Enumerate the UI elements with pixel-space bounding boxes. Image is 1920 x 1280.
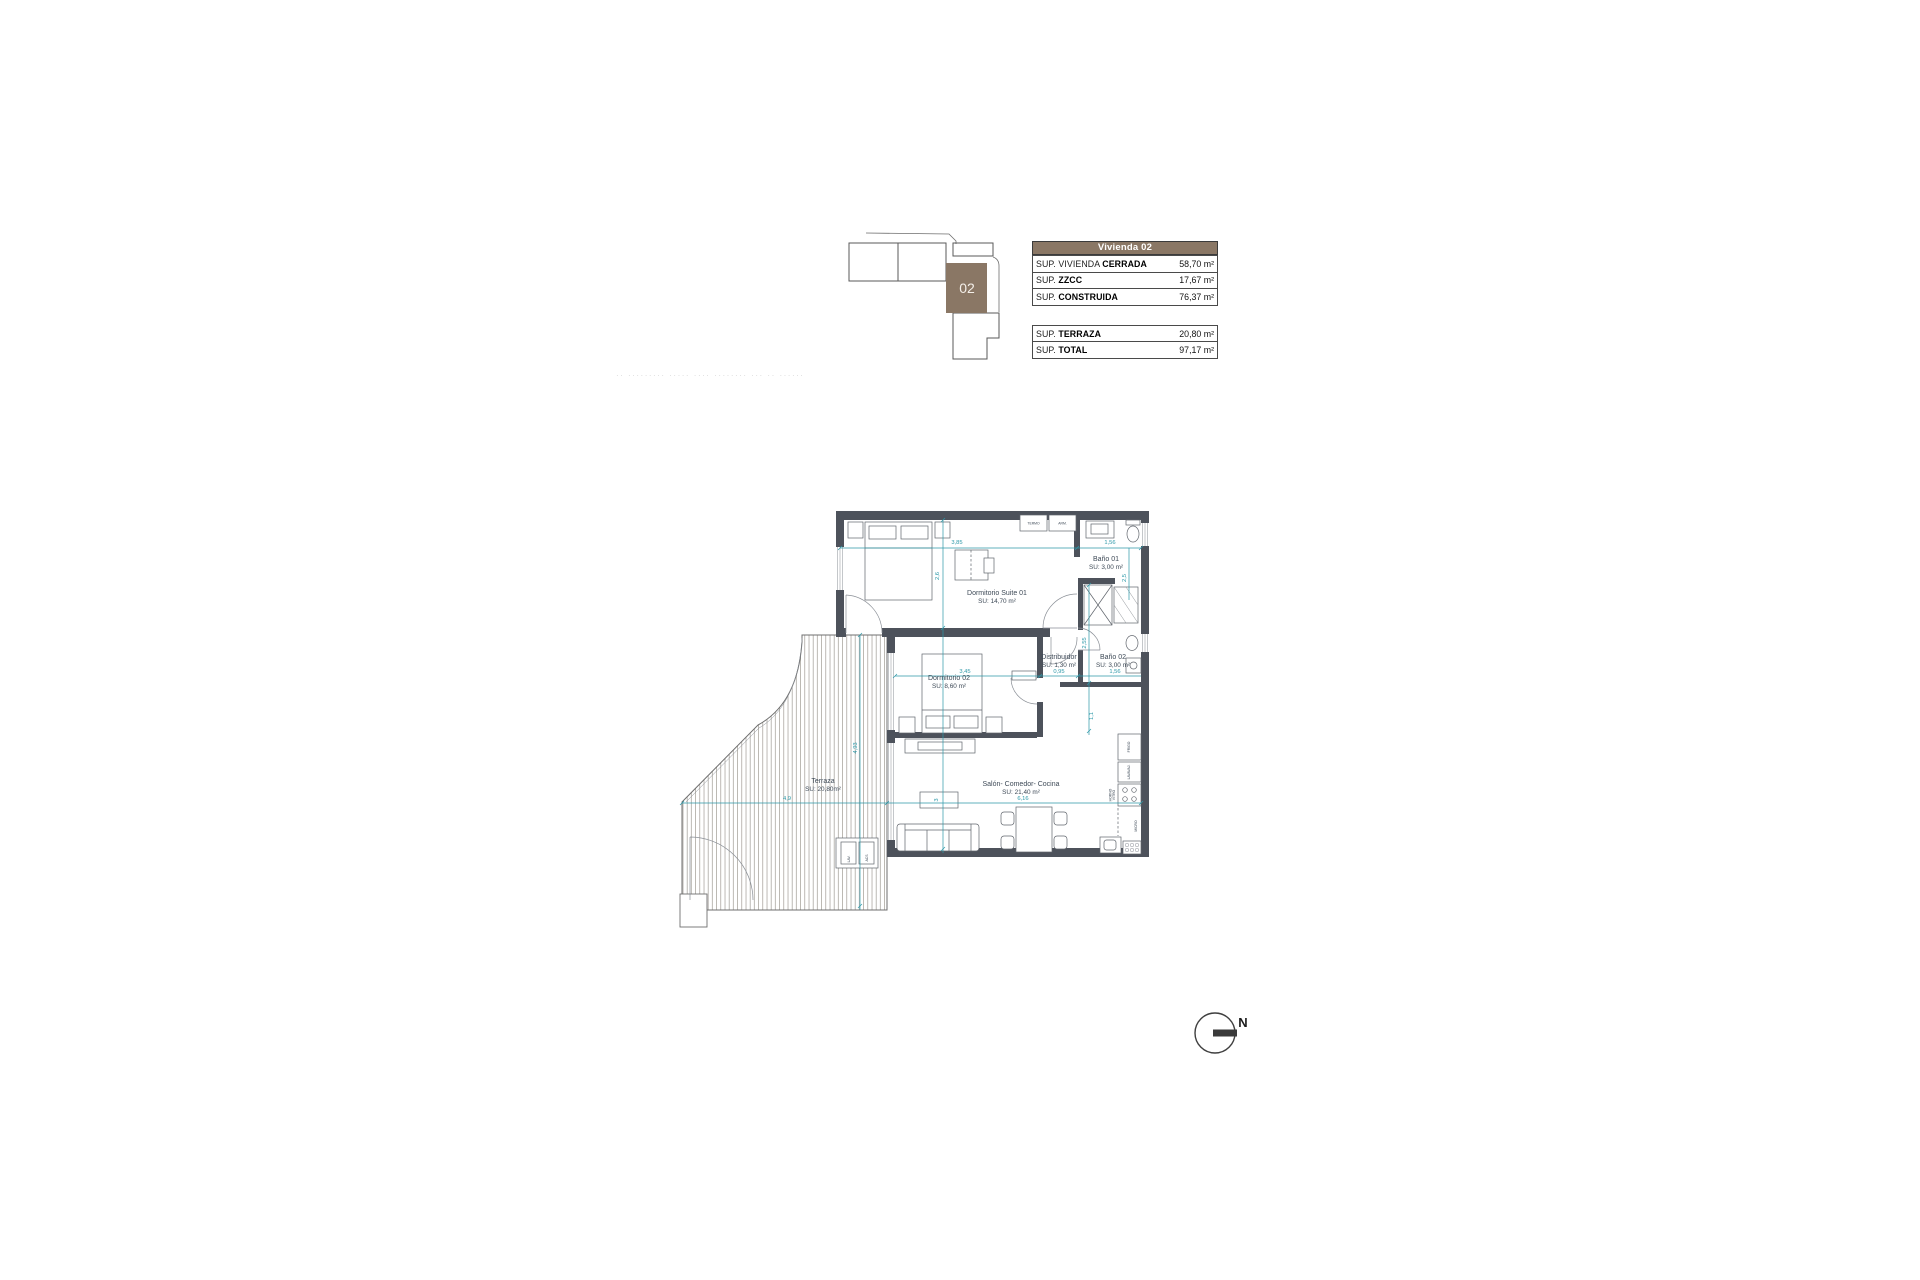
suite-name: Dormitorio Suite 01 — [967, 590, 1027, 597]
bano2-name: Baño 02 — [1100, 654, 1126, 661]
distribuidor-area: SU: 1,30 m² — [1042, 662, 1076, 669]
suite-nightstand — [935, 522, 950, 538]
kitchen-corner-hob — [1123, 841, 1141, 854]
key-plan-outer-line-right — [993, 257, 999, 312]
dorm2-pillow — [926, 716, 950, 728]
bano1-shower — [1114, 587, 1138, 623]
dim-hall-lower: 1,1 — [1089, 712, 1095, 720]
dim-salon-width: 6,16 — [1017, 796, 1028, 802]
row-label: SUP. — [1036, 275, 1058, 285]
terraza-deck — [682, 635, 887, 910]
row-label: SUP. — [1036, 345, 1058, 355]
table-gap — [1032, 306, 1218, 325]
dorm2-furniture — [899, 654, 1036, 733]
row-label-bold: CERRADA — [1102, 259, 1147, 269]
table-block-construida: SUP. VIVIENDA CERRADA 58,70 m² SUP. ZZCC… — [1032, 255, 1218, 306]
row-label: SUP. — [1036, 329, 1058, 339]
suite-chair — [984, 558, 994, 573]
tv-unit — [905, 739, 975, 753]
north-compass: N — [1170, 1000, 1270, 1060]
dishwasher-label: LAVAVAJ. — [1127, 765, 1131, 780]
dim-bano1-width: 1,56 — [1104, 540, 1115, 546]
key-plan-unit-label: 02 — [959, 280, 975, 296]
dining-chair — [1054, 836, 1067, 849]
dim-suite-width: 3,85 — [951, 540, 962, 546]
suite-closet — [1084, 585, 1112, 625]
key-plan-block-top-right — [953, 243, 993, 256]
lav-label: LAV. — [847, 856, 851, 863]
window-bano1 — [1141, 523, 1149, 546]
dorm2-nightstand — [986, 717, 1002, 733]
dorm2-shelf — [1012, 671, 1036, 680]
suite-nightstand — [848, 522, 863, 538]
dining-table — [1001, 807, 1067, 852]
suite-pillow — [901, 526, 928, 539]
dim-suite-height: 2,6 — [935, 572, 941, 580]
salon-area: SU: 21,40 m² — [1002, 789, 1040, 796]
dorm2-name: Dormitorio 02 — [928, 675, 970, 682]
key-plan-block-bottom — [953, 313, 999, 359]
watermark-text: ·· ········· ····· ···· ········ ··· ·· … — [616, 371, 806, 385]
bano1-name: Baño 01 — [1093, 556, 1119, 563]
row-label: SUP. VIVIENDA — [1036, 259, 1102, 269]
lav-acs-closet: LAV. ACS — [836, 838, 878, 868]
kitchen-strip: FRIGO LAVAVAJ. VITRO HORNO MICRO — [1100, 734, 1141, 854]
sofa — [897, 824, 979, 851]
dining-chair — [1001, 836, 1014, 849]
row-value: 97,17 m² — [1179, 345, 1214, 355]
dorm2-nightstand — [899, 717, 915, 733]
table-header: Vivienda 02 — [1032, 241, 1218, 255]
suite-furniture: TERMO ARM. — [848, 515, 1076, 600]
row-label-bold: TOTAL — [1058, 345, 1087, 355]
suite-area: SU: 14,70 m² — [978, 598, 1016, 605]
bano2-area: SU: 3,00 m² — [1096, 662, 1130, 669]
armario-label: ARM. — [1058, 522, 1067, 526]
row-value: 58,70 m² — [1179, 259, 1214, 269]
dim-terraza-width: 4,9 — [783, 796, 791, 802]
dining-chair — [1001, 812, 1014, 825]
row-value: 17,67 m² — [1179, 275, 1214, 285]
suite-door-arc — [846, 595, 882, 633]
suite-pillow — [869, 526, 896, 539]
dim-hall-height: 2,55 — [1082, 637, 1088, 648]
termo-label: TERMO — [1027, 522, 1040, 526]
bano1-fixtures — [1086, 520, 1140, 542]
surface-summary-table: Vivienda 02 SUP. VIVIENDA CERRADA 58,70 … — [1032, 241, 1218, 359]
dim-bano2-width: 1,56 — [1109, 669, 1120, 675]
kitchen-sink — [1100, 837, 1121, 853]
window-left-suite — [836, 547, 844, 590]
horno-label: HORNO — [1109, 788, 1113, 801]
row-label-bold: TERRAZA — [1058, 329, 1101, 339]
row-value: 76,37 m² — [1179, 292, 1214, 302]
key-plan: 02 — [836, 228, 1016, 373]
north-label: N — [1238, 1015, 1247, 1030]
salon-name: Salón- Comedor- Cocina — [982, 781, 1059, 788]
table-row: SUP. TOTAL 97,17 m² — [1033, 342, 1217, 359]
bano1-door-arc — [1043, 594, 1077, 628]
key-plan-outer-line — [866, 233, 956, 244]
row-label: SUP. — [1036, 292, 1058, 302]
dining-chair — [1054, 812, 1067, 825]
terraza-name: Terraza — [811, 778, 834, 785]
glazing-dorm2-terraza — [889, 653, 894, 730]
fridge-label: FRIGO — [1127, 741, 1131, 752]
terraza-area-label: SU: 20,80m² — [805, 786, 841, 793]
table-row: SUP. TERRAZA 20,80 m² — [1033, 326, 1217, 343]
dim-distribuidor-width: 0,95 — [1053, 669, 1064, 675]
bano2-toilet — [1126, 636, 1138, 651]
micro-label: MICRO — [1134, 820, 1138, 832]
bano1-sink — [1086, 521, 1114, 538]
dim-bano1-height: 2,5 — [1122, 574, 1128, 582]
dorm2-pillow — [954, 716, 978, 728]
table-row: SUP. VIVIENDA CERRADA 58,70 m² — [1033, 256, 1217, 273]
dim-sofa-depth: 3 — [934, 798, 940, 801]
row-label-bold: CONSTRUIDA — [1058, 292, 1118, 302]
row-value: 20,80 m² — [1179, 329, 1214, 339]
table-block-total: SUP. TERRAZA 20,80 m² SUP. TOTAL 97,17 m… — [1032, 325, 1218, 359]
dorm2-door-arc — [1011, 678, 1037, 704]
bano1-toilet-tank — [1126, 520, 1140, 525]
terraza-step — [680, 894, 707, 927]
window-bano2 — [1141, 634, 1149, 652]
bano1-toilet — [1127, 526, 1139, 542]
table-row: SUP. CONSTRUIDA 76,37 m² — [1033, 289, 1217, 306]
dim-terraza-height: 4,93 — [853, 742, 859, 753]
table-row: SUP. ZZCC 17,67 m² — [1033, 273, 1217, 290]
bano1-area: SU: 3,00 m² — [1089, 564, 1123, 571]
dorm2-area: SU: 8,60 m² — [932, 683, 966, 690]
vitro-label: VITRO — [1112, 789, 1116, 800]
distribuidor-name: Distribuidor — [1041, 654, 1077, 661]
compass-needle — [1213, 1030, 1237, 1037]
suite-desk — [955, 550, 988, 580]
glazing-salon-terraza — [889, 743, 894, 840]
terraza-area — [680, 635, 887, 927]
floor-plan: TERMO ARM. — [660, 490, 1170, 930]
acs-label: ACS — [865, 854, 869, 862]
row-label-bold: ZZCC — [1058, 275, 1082, 285]
plan-sheet: 02 Vivienda 02 SUP. VIVIENDA CERRADA 58,… — [0, 0, 1920, 1280]
